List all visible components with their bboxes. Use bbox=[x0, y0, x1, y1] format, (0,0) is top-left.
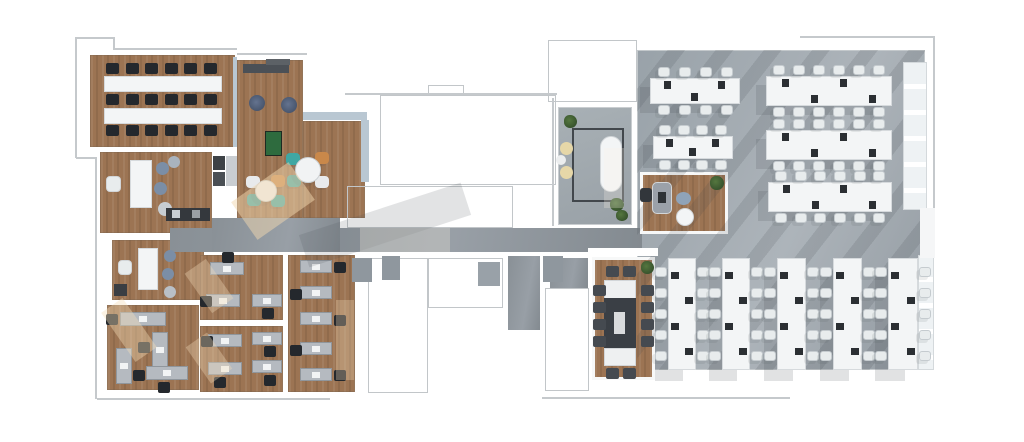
training-desk-row bbox=[104, 108, 222, 124]
chair bbox=[606, 368, 619, 379]
wall-outline bbox=[380, 95, 556, 185]
office-chair bbox=[764, 309, 776, 319]
phone-mark bbox=[658, 192, 666, 203]
monitor bbox=[840, 133, 847, 141]
office-chair bbox=[820, 267, 832, 277]
kitchen-chair bbox=[106, 176, 121, 192]
office-chair bbox=[873, 65, 885, 75]
office-chair bbox=[222, 252, 234, 263]
monitor bbox=[712, 139, 719, 147]
paper bbox=[312, 264, 320, 270]
office-chair bbox=[290, 345, 302, 356]
chair bbox=[606, 266, 619, 277]
lounge-pouf bbox=[249, 95, 265, 111]
office-chair bbox=[853, 65, 865, 75]
office-chair bbox=[715, 125, 727, 135]
office-chair bbox=[659, 160, 671, 170]
monitor bbox=[891, 323, 899, 330]
lounge-pouf bbox=[281, 97, 297, 113]
office-chair bbox=[290, 289, 302, 300]
monitor bbox=[907, 297, 915, 304]
monitor bbox=[666, 139, 673, 147]
plant bbox=[641, 261, 654, 274]
chair bbox=[106, 94, 119, 105]
monitor bbox=[780, 323, 788, 330]
office-chair bbox=[655, 288, 667, 298]
chair bbox=[165, 125, 178, 136]
monitor bbox=[907, 348, 915, 355]
office-chair bbox=[834, 213, 846, 223]
office-chair bbox=[775, 171, 787, 181]
office-chair bbox=[709, 288, 721, 298]
office-chair bbox=[813, 65, 825, 75]
paper bbox=[263, 364, 271, 370]
paper bbox=[221, 338, 229, 344]
cabinet bbox=[213, 156, 225, 170]
stool bbox=[162, 268, 174, 280]
chair bbox=[204, 125, 217, 136]
office-chair bbox=[700, 67, 712, 77]
office-chair bbox=[813, 161, 825, 171]
office-chair bbox=[807, 351, 819, 361]
core-gray-strip bbox=[508, 256, 540, 330]
office-chair bbox=[709, 351, 721, 361]
office-chair bbox=[820, 330, 832, 340]
paper bbox=[221, 366, 229, 372]
office-chair bbox=[200, 296, 212, 307]
office-chair bbox=[813, 119, 825, 129]
office-chair bbox=[106, 314, 118, 325]
chair bbox=[184, 94, 197, 105]
pouf bbox=[556, 155, 566, 165]
monitor bbox=[836, 272, 844, 279]
office-chair bbox=[807, 330, 819, 340]
paper bbox=[263, 298, 271, 304]
wall-line bbox=[542, 397, 790, 399]
chair bbox=[126, 63, 139, 74]
media-cabinet bbox=[266, 59, 290, 65]
monitor bbox=[725, 272, 733, 279]
conference-table-end bbox=[604, 348, 636, 366]
wall-line bbox=[76, 157, 96, 159]
office-chair bbox=[751, 330, 763, 340]
corridor-floor-upper bbox=[212, 218, 340, 252]
office-chair bbox=[655, 267, 667, 277]
wall-line bbox=[237, 53, 307, 55]
foosball-table bbox=[265, 131, 282, 156]
wall-line bbox=[552, 98, 554, 226]
stool bbox=[156, 162, 169, 175]
monitor bbox=[811, 95, 818, 103]
laptop bbox=[614, 312, 625, 334]
office-chair bbox=[793, 65, 805, 75]
monitor bbox=[671, 323, 679, 330]
office-chair bbox=[264, 346, 276, 357]
monitor bbox=[812, 201, 819, 209]
monitor bbox=[782, 79, 789, 87]
chair bbox=[126, 94, 139, 105]
office-chair bbox=[873, 213, 885, 223]
office-chair bbox=[807, 309, 819, 319]
office-chair bbox=[873, 119, 885, 129]
wall-line bbox=[345, 93, 557, 95]
wall-line bbox=[113, 48, 237, 50]
huddle-chair bbox=[118, 260, 132, 275]
wall-line bbox=[75, 37, 114, 39]
paper bbox=[263, 336, 271, 342]
huddle-table bbox=[138, 248, 158, 290]
office-chair bbox=[334, 370, 346, 381]
floorplan-canvas bbox=[0, 0, 1024, 442]
conference-table-end bbox=[604, 280, 636, 300]
monitor bbox=[869, 95, 876, 103]
office-chair bbox=[834, 171, 846, 181]
chair bbox=[145, 63, 158, 74]
office-chair bbox=[133, 370, 145, 381]
office-chair bbox=[863, 288, 875, 298]
paper bbox=[163, 370, 171, 376]
monitor bbox=[782, 133, 789, 141]
monitor bbox=[685, 297, 693, 304]
office-chair bbox=[875, 267, 887, 277]
office-chair bbox=[715, 160, 727, 170]
office-chair bbox=[875, 309, 887, 319]
monitor bbox=[780, 272, 788, 279]
office-chair bbox=[773, 161, 785, 171]
monitor bbox=[718, 81, 725, 89]
monitor bbox=[811, 149, 818, 157]
office-chair bbox=[709, 330, 721, 340]
office-chair bbox=[833, 119, 845, 129]
stool bbox=[168, 156, 180, 168]
chair bbox=[184, 125, 197, 136]
office-chair bbox=[658, 105, 670, 115]
office-chair bbox=[773, 107, 785, 117]
cabinet bbox=[213, 172, 225, 186]
office-chair bbox=[853, 161, 865, 171]
stool bbox=[164, 250, 176, 262]
pouf bbox=[560, 166, 573, 179]
office-chair bbox=[264, 375, 276, 386]
monitor bbox=[685, 348, 693, 355]
office-chair bbox=[793, 161, 805, 171]
paper bbox=[120, 363, 128, 369]
office-chair bbox=[334, 262, 346, 273]
wall-line bbox=[933, 55, 935, 210]
cabinet bbox=[114, 284, 127, 296]
office-chair bbox=[833, 161, 845, 171]
office-chair bbox=[873, 161, 885, 171]
chair bbox=[641, 319, 654, 330]
office-chair bbox=[775, 213, 787, 223]
chair bbox=[126, 125, 139, 136]
office-chair bbox=[678, 125, 690, 135]
chair bbox=[145, 94, 158, 105]
paper bbox=[312, 290, 320, 296]
side-chair bbox=[640, 188, 652, 202]
wall-line bbox=[800, 36, 934, 38]
office-chair bbox=[697, 267, 709, 277]
chair bbox=[641, 302, 654, 313]
monitor bbox=[851, 297, 859, 304]
office-chair bbox=[709, 267, 721, 277]
plant bbox=[564, 115, 577, 128]
chair bbox=[106, 63, 119, 74]
monitor bbox=[725, 323, 733, 330]
office-chair bbox=[919, 351, 931, 361]
chair bbox=[593, 319, 606, 330]
office-chair bbox=[679, 105, 691, 115]
stool bbox=[154, 182, 167, 195]
office-chair bbox=[807, 288, 819, 298]
office-chair bbox=[795, 171, 807, 181]
shaft bbox=[543, 256, 563, 282]
monitor bbox=[851, 348, 859, 355]
office-chair bbox=[138, 342, 150, 353]
office-chair bbox=[853, 119, 865, 129]
office-chair bbox=[721, 105, 733, 115]
paper bbox=[312, 372, 320, 378]
wall-outline bbox=[545, 288, 589, 391]
shaft bbox=[382, 256, 400, 280]
paper bbox=[223, 266, 231, 272]
shaft bbox=[352, 258, 372, 282]
office-chair bbox=[697, 288, 709, 298]
wall-line bbox=[95, 157, 97, 399]
kitchen-table bbox=[130, 160, 152, 208]
window-band bbox=[361, 120, 369, 182]
wall-outline bbox=[548, 40, 637, 102]
office-chair bbox=[863, 309, 875, 319]
appliance bbox=[172, 210, 180, 218]
monitor bbox=[739, 348, 747, 355]
office-chair bbox=[655, 330, 667, 340]
office-chair bbox=[833, 107, 845, 117]
chair bbox=[623, 368, 636, 379]
office-chair bbox=[697, 330, 709, 340]
office-chair bbox=[793, 107, 805, 117]
round-table bbox=[255, 180, 277, 202]
monitor bbox=[783, 185, 790, 193]
paper bbox=[139, 316, 147, 322]
wall-line bbox=[97, 398, 330, 400]
office-chair bbox=[919, 330, 931, 340]
wall-line bbox=[75, 37, 77, 158]
pouf bbox=[560, 142, 573, 155]
coffee-table bbox=[676, 208, 694, 226]
monitor bbox=[671, 272, 679, 279]
window-band bbox=[303, 112, 367, 120]
plant bbox=[616, 210, 628, 221]
chair bbox=[165, 63, 178, 74]
office-chair bbox=[721, 67, 733, 77]
chair bbox=[165, 94, 178, 105]
office-chair bbox=[814, 213, 826, 223]
shaft bbox=[478, 262, 500, 286]
paper bbox=[219, 298, 227, 304]
office-chair bbox=[807, 267, 819, 277]
plant bbox=[710, 176, 724, 190]
office-chair bbox=[655, 351, 667, 361]
chair bbox=[184, 63, 197, 74]
office-chair bbox=[696, 125, 708, 135]
office-chair bbox=[214, 377, 226, 388]
appliance bbox=[192, 210, 200, 218]
office-chair bbox=[697, 351, 709, 361]
office-chair bbox=[873, 107, 885, 117]
office-chair bbox=[751, 288, 763, 298]
office-chair bbox=[764, 267, 776, 277]
office-chair bbox=[655, 309, 667, 319]
chair bbox=[623, 266, 636, 277]
window-panel bbox=[903, 62, 927, 210]
office-chair bbox=[919, 288, 931, 298]
monitor bbox=[691, 93, 698, 101]
office-chair bbox=[854, 213, 866, 223]
chair bbox=[593, 285, 606, 296]
chair bbox=[593, 302, 606, 313]
office-chair bbox=[875, 351, 887, 361]
office-chair bbox=[696, 160, 708, 170]
office-chair bbox=[820, 351, 832, 361]
monitor bbox=[795, 348, 803, 355]
chair bbox=[641, 285, 654, 296]
office-chair bbox=[793, 119, 805, 129]
office-chair bbox=[919, 267, 931, 277]
office-chair bbox=[764, 351, 776, 361]
monitor bbox=[840, 185, 847, 193]
office-chair bbox=[334, 315, 346, 326]
office-chair bbox=[863, 330, 875, 340]
cabinet bbox=[226, 156, 237, 186]
office-chair bbox=[697, 309, 709, 319]
office-chair bbox=[873, 171, 885, 181]
office-chair bbox=[863, 267, 875, 277]
office-chair bbox=[158, 382, 170, 393]
wall-outline bbox=[347, 186, 513, 228]
chair bbox=[145, 125, 158, 136]
office-chair bbox=[679, 67, 691, 77]
office-chair bbox=[764, 288, 776, 298]
office-chair bbox=[919, 309, 931, 319]
training-desk-row bbox=[104, 76, 222, 92]
office-chair bbox=[658, 67, 670, 77]
monitor bbox=[664, 81, 671, 89]
office-chair bbox=[820, 309, 832, 319]
media-cabinet bbox=[243, 64, 289, 73]
round-table bbox=[295, 157, 321, 183]
office-chair bbox=[773, 65, 785, 75]
monitor bbox=[869, 201, 876, 209]
office-chair bbox=[764, 330, 776, 340]
monitor bbox=[739, 297, 747, 304]
office-chair bbox=[854, 171, 866, 181]
office-chair bbox=[700, 105, 712, 115]
chair bbox=[106, 125, 119, 136]
office-chair bbox=[863, 351, 875, 361]
office-chair bbox=[659, 125, 671, 135]
office-chair bbox=[833, 65, 845, 75]
chair bbox=[204, 63, 217, 74]
wall bbox=[588, 248, 658, 256]
office-chair bbox=[678, 160, 690, 170]
office-chair bbox=[751, 351, 763, 361]
office-chair bbox=[853, 107, 865, 117]
chair bbox=[204, 94, 217, 105]
office-chair bbox=[820, 288, 832, 298]
office-chair bbox=[814, 171, 826, 181]
office-chair bbox=[262, 308, 274, 319]
stool bbox=[164, 286, 176, 298]
office-chair bbox=[709, 309, 721, 319]
paper bbox=[312, 346, 320, 352]
paper bbox=[156, 347, 164, 353]
monitor bbox=[689, 148, 696, 156]
office-chair bbox=[813, 107, 825, 117]
pouf bbox=[676, 192, 691, 205]
monitor bbox=[836, 323, 844, 330]
monitor bbox=[869, 149, 876, 157]
paper bbox=[312, 316, 320, 322]
office-chair bbox=[875, 288, 887, 298]
office-chair bbox=[773, 119, 785, 129]
monitor bbox=[795, 297, 803, 304]
monitor bbox=[891, 272, 899, 279]
office-chair bbox=[875, 330, 887, 340]
office-chair bbox=[201, 336, 213, 347]
chair bbox=[593, 336, 606, 347]
chair bbox=[641, 336, 654, 347]
office-chair bbox=[795, 213, 807, 223]
office-chair bbox=[751, 267, 763, 277]
wall-band bbox=[920, 208, 935, 258]
office-chair bbox=[751, 309, 763, 319]
oval-table bbox=[600, 136, 622, 192]
window-band bbox=[233, 57, 237, 147]
monitor bbox=[840, 79, 847, 87]
